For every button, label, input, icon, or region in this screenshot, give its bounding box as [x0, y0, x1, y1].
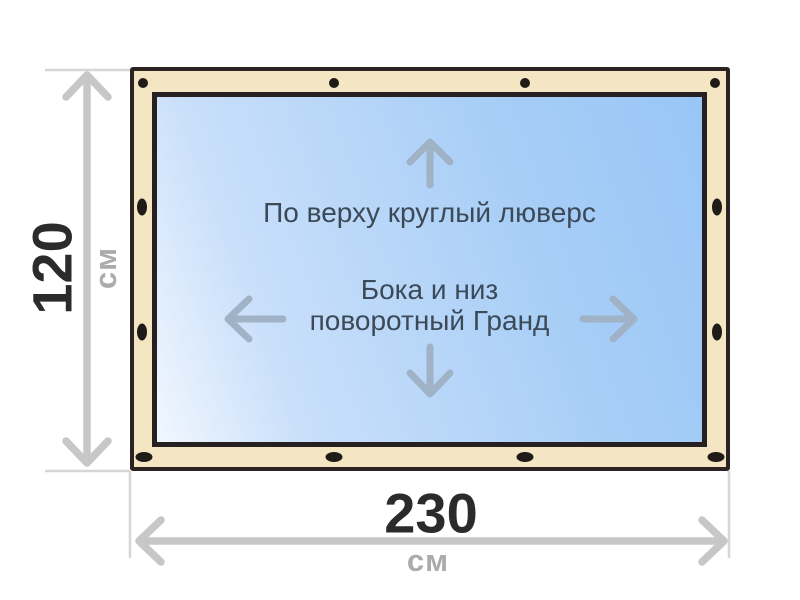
center-note-line1: Бока и низ [152, 274, 707, 305]
round-grommet-icon [520, 78, 530, 88]
width-value: 230 [384, 481, 477, 546]
oval-grommet-icon [137, 199, 147, 216]
round-grommet-icon [138, 78, 148, 88]
oval-grommet-icon [326, 452, 343, 462]
oval-grommet-icon [712, 199, 722, 216]
top-edge-note: По верху круглый люверс [152, 197, 707, 228]
banner-size-diagram: По верху круглый люверс Бока и низ повор… [0, 0, 800, 600]
center-note-line2: поворотный Гранд [152, 305, 707, 336]
round-grommet-icon [329, 78, 339, 88]
oval-grommet-icon [137, 324, 147, 341]
banner-canvas [152, 92, 707, 447]
round-grommet-icon [710, 78, 720, 88]
height-value: 120 [20, 221, 85, 314]
oval-grommet-icon [517, 452, 534, 462]
oval-grommet-icon [708, 452, 725, 462]
oval-grommet-icon [136, 452, 153, 462]
height-unit: см [88, 247, 124, 289]
oval-grommet-icon [712, 324, 722, 341]
width-unit: см [407, 543, 449, 579]
center-note: Бока и низ поворотный Гранд [152, 274, 707, 336]
